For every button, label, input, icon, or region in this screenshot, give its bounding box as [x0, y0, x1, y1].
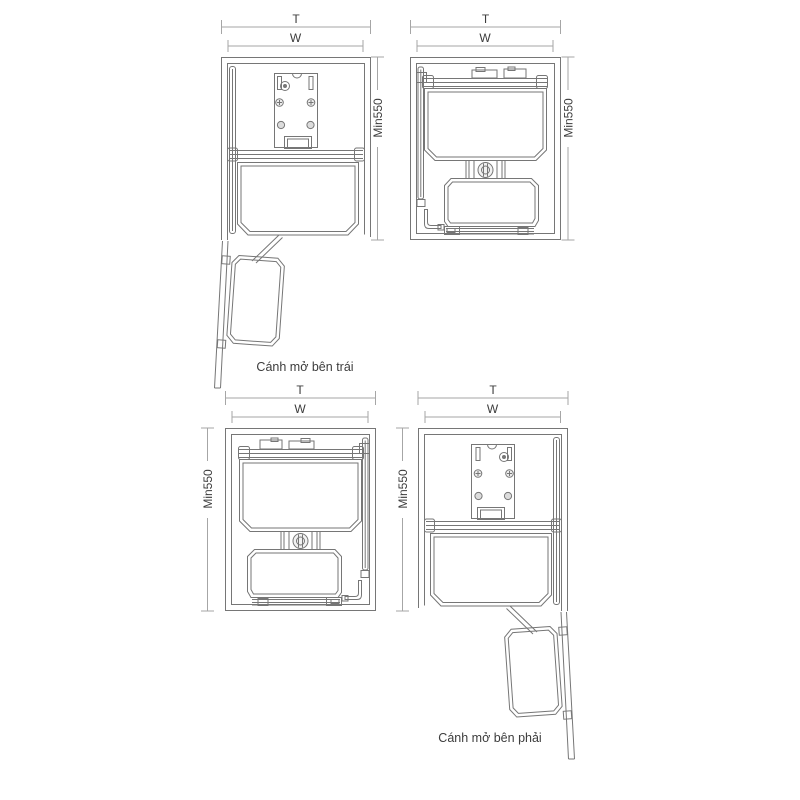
cabinet-closed-left-hinge	[411, 58, 561, 240]
diagram-bottom-right: T W Min550 Cánh mở bên phải	[396, 383, 575, 759]
technical-drawing-page: T W Min550 Cánh mở bên trái T W Min550 T	[0, 0, 800, 800]
dimension-depth-bottom-left	[201, 428, 214, 611]
dim-label-T: T	[296, 383, 304, 397]
dim-label-W: W	[479, 31, 491, 45]
cabinet-open-left	[215, 58, 371, 389]
dim-label-depth: Min550	[562, 98, 576, 138]
dim-label-W: W	[294, 402, 306, 416]
dim-label-T: T	[489, 383, 497, 397]
caption-right-opening: Cánh mở bên phải	[438, 731, 541, 745]
dim-label-T: T	[292, 12, 300, 26]
dimension-depth-top-right	[562, 57, 575, 240]
cabinet-open-right	[419, 429, 575, 760]
cabinet-closed-right-hinge	[226, 429, 376, 611]
cabinet-installation-diagram: T W Min550 Cánh mở bên trái T W Min550 T	[0, 0, 800, 800]
dim-label-depth: Min550	[371, 98, 385, 138]
dim-label-W: W	[487, 402, 499, 416]
dim-label-W: W	[290, 31, 302, 45]
dimension-depth-top-left	[371, 57, 384, 240]
dim-label-depth: Min550	[201, 469, 215, 509]
diagram-top-right: T W Min550	[411, 12, 576, 240]
dim-label-depth: Min550	[396, 469, 410, 509]
caption-left-opening: Cánh mở bên trái	[256, 360, 353, 374]
dim-label-T: T	[482, 12, 490, 26]
dimension-depth-bottom-right	[396, 428, 409, 611]
diagram-bottom-left: T W Min550	[201, 383, 376, 611]
diagram-top-left: T W Min550 Cánh mở bên trái	[215, 12, 386, 388]
